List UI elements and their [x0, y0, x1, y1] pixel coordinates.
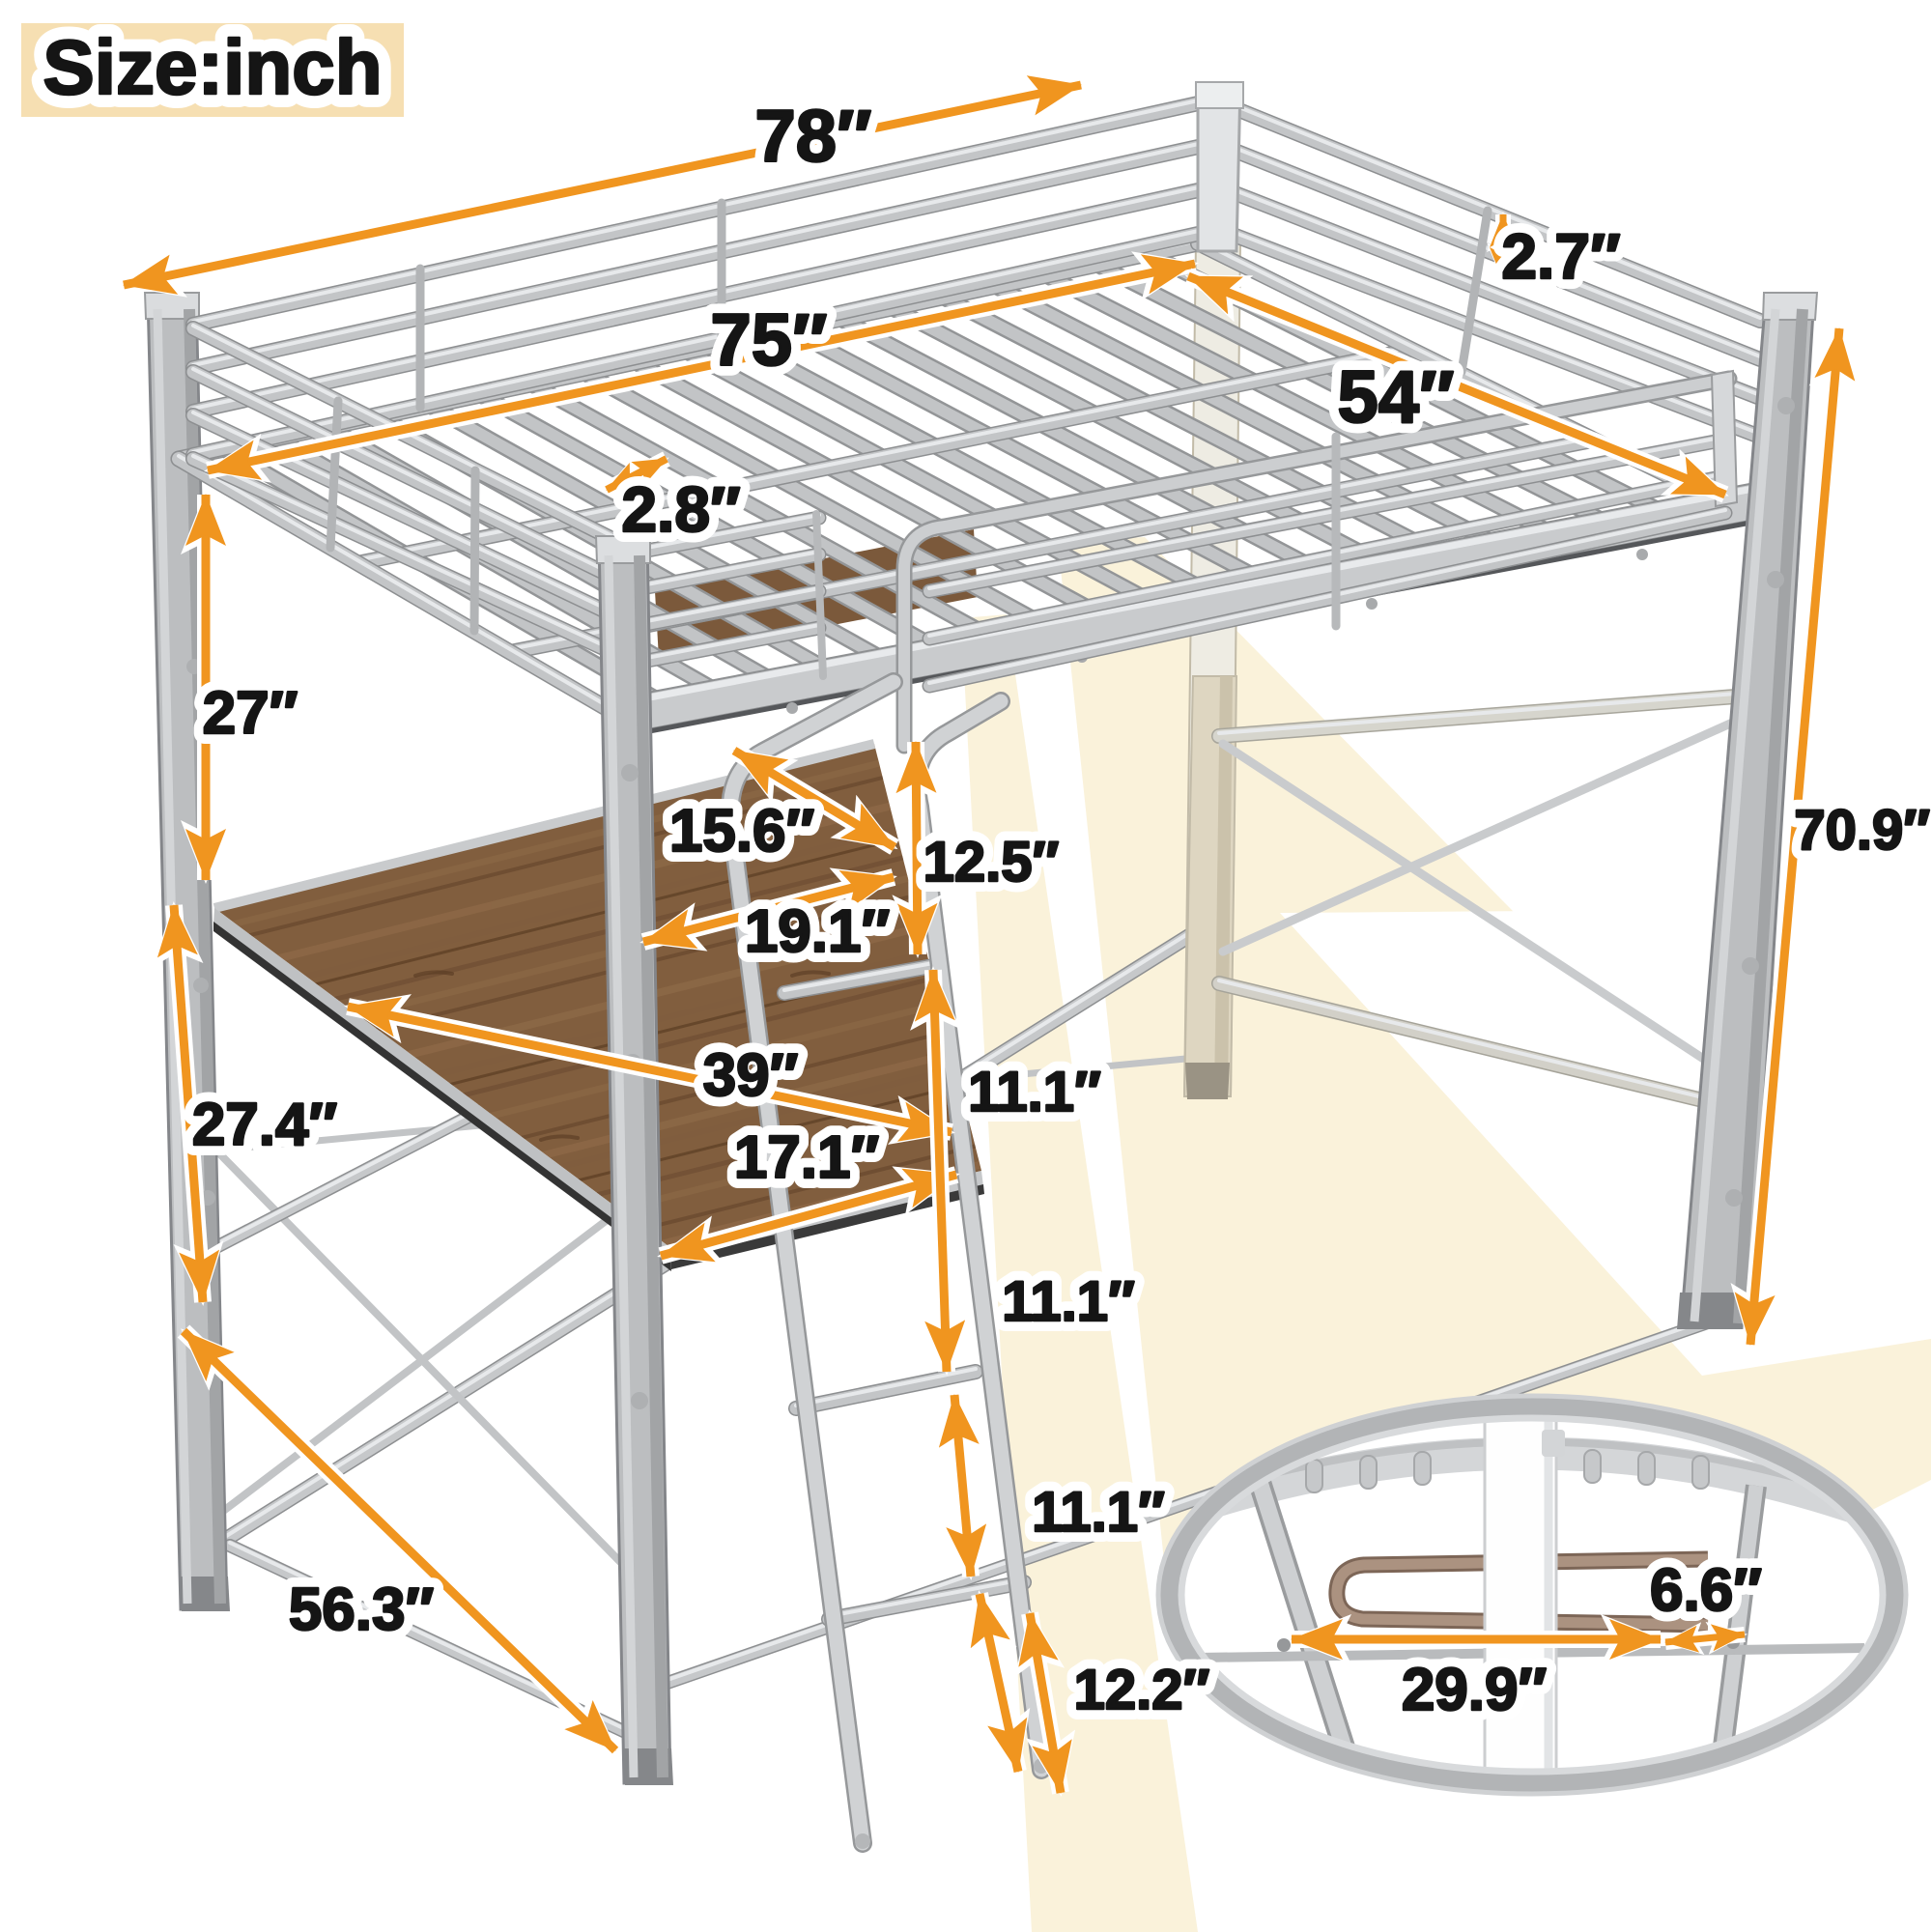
svg-text:75″: 75″ [711, 299, 828, 382]
svg-text:29.9″: 29.9″ [1402, 1657, 1547, 1723]
svg-text:15.6″: 15.6″ [669, 798, 814, 865]
svg-text:54″: 54″ [1338, 356, 1455, 439]
svg-text:78″: 78″ [755, 96, 872, 178]
svg-text:2.8″: 2.8″ [621, 473, 740, 545]
svg-text:56.3″: 56.3″ [289, 1577, 434, 1643]
svg-text:12.2″: 12.2″ [1074, 1659, 1210, 1721]
svg-text:Size:inch: Size:inch [43, 24, 382, 110]
svg-text:6.6″: 6.6″ [1650, 1557, 1762, 1624]
svg-text:27″: 27″ [203, 680, 298, 747]
svg-text:11.1″: 11.1″ [1032, 1481, 1164, 1544]
svg-text:70.9″: 70.9″ [1794, 799, 1930, 862]
svg-text:2.7″: 2.7″ [1501, 220, 1620, 292]
svg-text:19.1″: 19.1″ [745, 898, 890, 965]
svg-text:39″: 39″ [703, 1042, 799, 1109]
svg-text:17.1″: 17.1″ [734, 1124, 879, 1191]
svg-text:11.1″: 11.1″ [1002, 1270, 1134, 1333]
svg-text:11.1″: 11.1″ [968, 1061, 1100, 1123]
svg-text:12.5″: 12.5″ [923, 831, 1060, 894]
svg-text:27.4″: 27.4″ [192, 1092, 337, 1158]
